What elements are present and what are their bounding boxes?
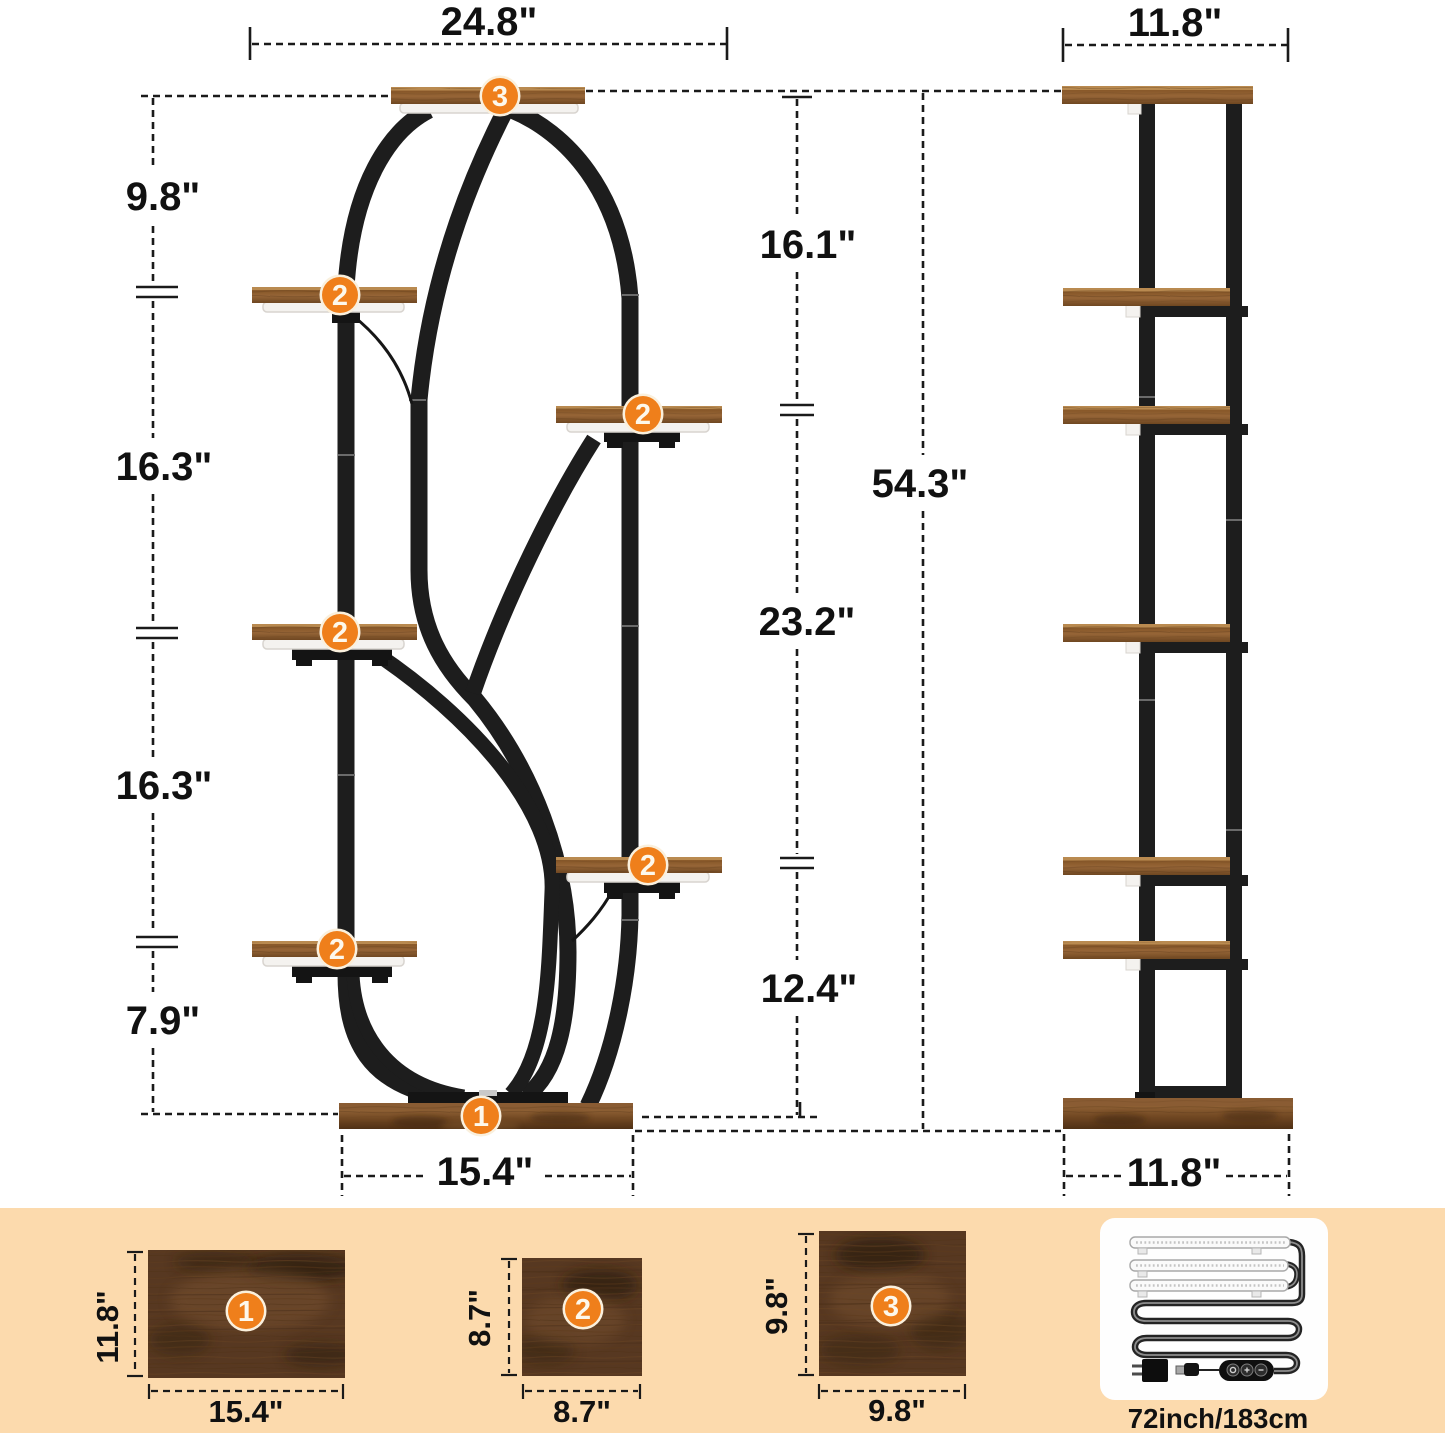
svg-text:12.4": 12.4" xyxy=(761,967,858,1011)
svg-text:7.9": 7.9" xyxy=(126,999,201,1043)
svg-text:54.3": 54.3" xyxy=(872,462,969,506)
svg-text:2: 2 xyxy=(332,280,348,312)
svg-text:16.3": 16.3" xyxy=(116,445,213,489)
svg-text:9.8": 9.8" xyxy=(868,1393,926,1428)
svg-text:1: 1 xyxy=(238,1296,254,1328)
svg-text:11.8": 11.8" xyxy=(90,1290,125,1363)
svg-text:8.7": 8.7" xyxy=(462,1289,497,1347)
svg-text:15.4": 15.4" xyxy=(208,1394,283,1429)
svg-text:9.8": 9.8" xyxy=(126,175,201,219)
svg-text:23.2": 23.2" xyxy=(759,600,856,644)
svg-text:11.8": 11.8" xyxy=(1127,1151,1222,1195)
svg-text:2: 2 xyxy=(640,850,656,882)
svg-text:72inch/183cm: 72inch/183cm xyxy=(1128,1403,1308,1434)
svg-text:8.7": 8.7" xyxy=(553,1394,611,1429)
svg-text:2: 2 xyxy=(635,399,651,431)
svg-text:2: 2 xyxy=(575,1294,591,1326)
svg-text:11.8": 11.8" xyxy=(1128,1,1223,45)
svg-text:3: 3 xyxy=(883,1291,899,1323)
svg-text:16.3": 16.3" xyxy=(116,764,213,808)
svg-text:15.4": 15.4" xyxy=(437,1150,534,1194)
svg-text:3: 3 xyxy=(492,81,508,113)
svg-text:16.1": 16.1" xyxy=(760,223,857,267)
svg-text:24.8": 24.8" xyxy=(441,0,538,44)
svg-text:9.8": 9.8" xyxy=(759,1277,794,1335)
svg-text:2: 2 xyxy=(332,617,348,649)
svg-text:2: 2 xyxy=(329,934,345,966)
svg-text:1: 1 xyxy=(473,1101,489,1133)
